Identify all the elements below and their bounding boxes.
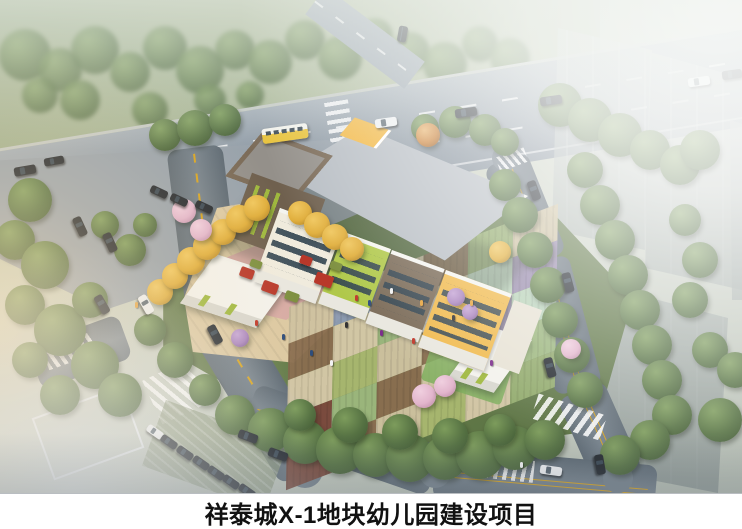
car-windshield: [141, 299, 149, 306]
bus-windows: [266, 126, 304, 135]
caption-bar: 祥泰城X-1地块幼儿园建设项目: [0, 493, 742, 529]
car-windshield: [196, 458, 203, 465]
park-tree: [110, 52, 150, 92]
tree: [525, 420, 565, 460]
tree: [12, 342, 48, 378]
tree: [491, 128, 519, 156]
car-windshield: [75, 221, 83, 228]
car-windshield: [199, 203, 205, 210]
tree: [284, 399, 316, 431]
person: [490, 360, 493, 366]
tree: [600, 435, 640, 475]
person: [345, 322, 348, 328]
tree: [40, 375, 80, 415]
caption-text: 祥泰城X-1地块幼儿园建设项目: [205, 495, 538, 529]
car-windshield: [694, 78, 700, 86]
tree: [517, 232, 553, 268]
tree: [189, 374, 221, 406]
autumn-tree: [340, 237, 364, 261]
car-windshield: [105, 237, 113, 244]
park-tree: [60, 80, 100, 120]
car-windshield: [563, 277, 571, 283]
park-tree: [22, 77, 58, 113]
project-rendering-figure: 祥泰城X-1地块幼儿园建设项目: [0, 0, 742, 529]
lilac-shrub: [231, 329, 249, 347]
tree: [21, 241, 69, 289]
gatehouse-door: [476, 372, 489, 384]
person: [310, 350, 313, 356]
car-windshield: [154, 188, 160, 195]
tree: [530, 267, 566, 303]
person: [452, 315, 455, 321]
car-windshield: [273, 450, 280, 458]
person: [520, 462, 523, 468]
tree: [502, 197, 538, 233]
car-windshield: [226, 477, 233, 484]
lilac-shrub: [447, 288, 465, 306]
tree: [157, 342, 193, 378]
person: [135, 302, 138, 308]
car-windshield: [49, 158, 54, 165]
tree: [133, 213, 157, 237]
tree: [489, 169, 521, 201]
tree: [8, 178, 52, 222]
autumn-tree: [489, 241, 511, 263]
tree: [669, 204, 701, 236]
car-windshield: [211, 468, 218, 475]
tree: [620, 290, 660, 330]
car-windshield: [242, 486, 249, 493]
car-windshield: [180, 448, 187, 455]
blossom-tree: [412, 384, 436, 408]
car-windshield: [174, 196, 180, 203]
tree: [682, 242, 718, 278]
car-windshield: [164, 437, 171, 444]
car-windshield: [20, 167, 26, 175]
person: [255, 320, 258, 326]
car-windshield: [461, 109, 467, 117]
tree: [567, 372, 603, 408]
car-windshield: [546, 466, 552, 474]
person: [330, 360, 333, 366]
car-windshield: [150, 427, 157, 434]
person: [380, 330, 383, 336]
tree: [542, 302, 578, 338]
person: [412, 338, 415, 344]
autumn-tree: [244, 195, 270, 221]
person: [420, 300, 423, 306]
aerial-rendering: [0, 0, 742, 493]
autumn-tree: [416, 123, 440, 147]
tree: [680, 130, 720, 170]
gatehouse-door: [460, 367, 473, 379]
tree: [698, 398, 742, 442]
person: [390, 288, 393, 294]
car-windshield: [529, 185, 537, 192]
person: [470, 300, 473, 306]
tree: [134, 314, 166, 346]
tree: [114, 234, 146, 266]
car-windshield: [546, 97, 552, 105]
car-windshield: [210, 329, 218, 336]
lilac-shrub: [462, 304, 478, 320]
tree: [332, 407, 368, 443]
tree: [432, 418, 468, 454]
tree: [382, 414, 418, 450]
tree: [98, 373, 142, 417]
tree: [642, 360, 682, 400]
tree: [580, 185, 620, 225]
tree: [595, 220, 635, 260]
person: [355, 295, 358, 301]
car-windshield: [97, 299, 105, 306]
blossom-tree: [434, 375, 456, 397]
tree: [608, 255, 648, 295]
tree: [209, 104, 241, 136]
car-windshield: [243, 432, 250, 440]
glass-canopy: [0, 452, 128, 493]
tree: [177, 110, 213, 146]
car-windshield: [596, 460, 604, 466]
tree: [149, 119, 181, 151]
car-windshield: [727, 71, 732, 79]
tree: [632, 325, 672, 365]
car-windshield: [381, 119, 387, 127]
person: [282, 334, 285, 340]
blossom-tree: [561, 339, 581, 359]
gatehouse-door: [198, 295, 211, 307]
car-windshield: [399, 27, 403, 41]
blossom-tree: [190, 219, 212, 241]
tree: [567, 152, 603, 188]
tree: [484, 414, 516, 446]
car-windshield: [545, 362, 553, 368]
facade-windows: [376, 263, 437, 323]
tree: [672, 282, 708, 318]
person: [368, 300, 371, 306]
